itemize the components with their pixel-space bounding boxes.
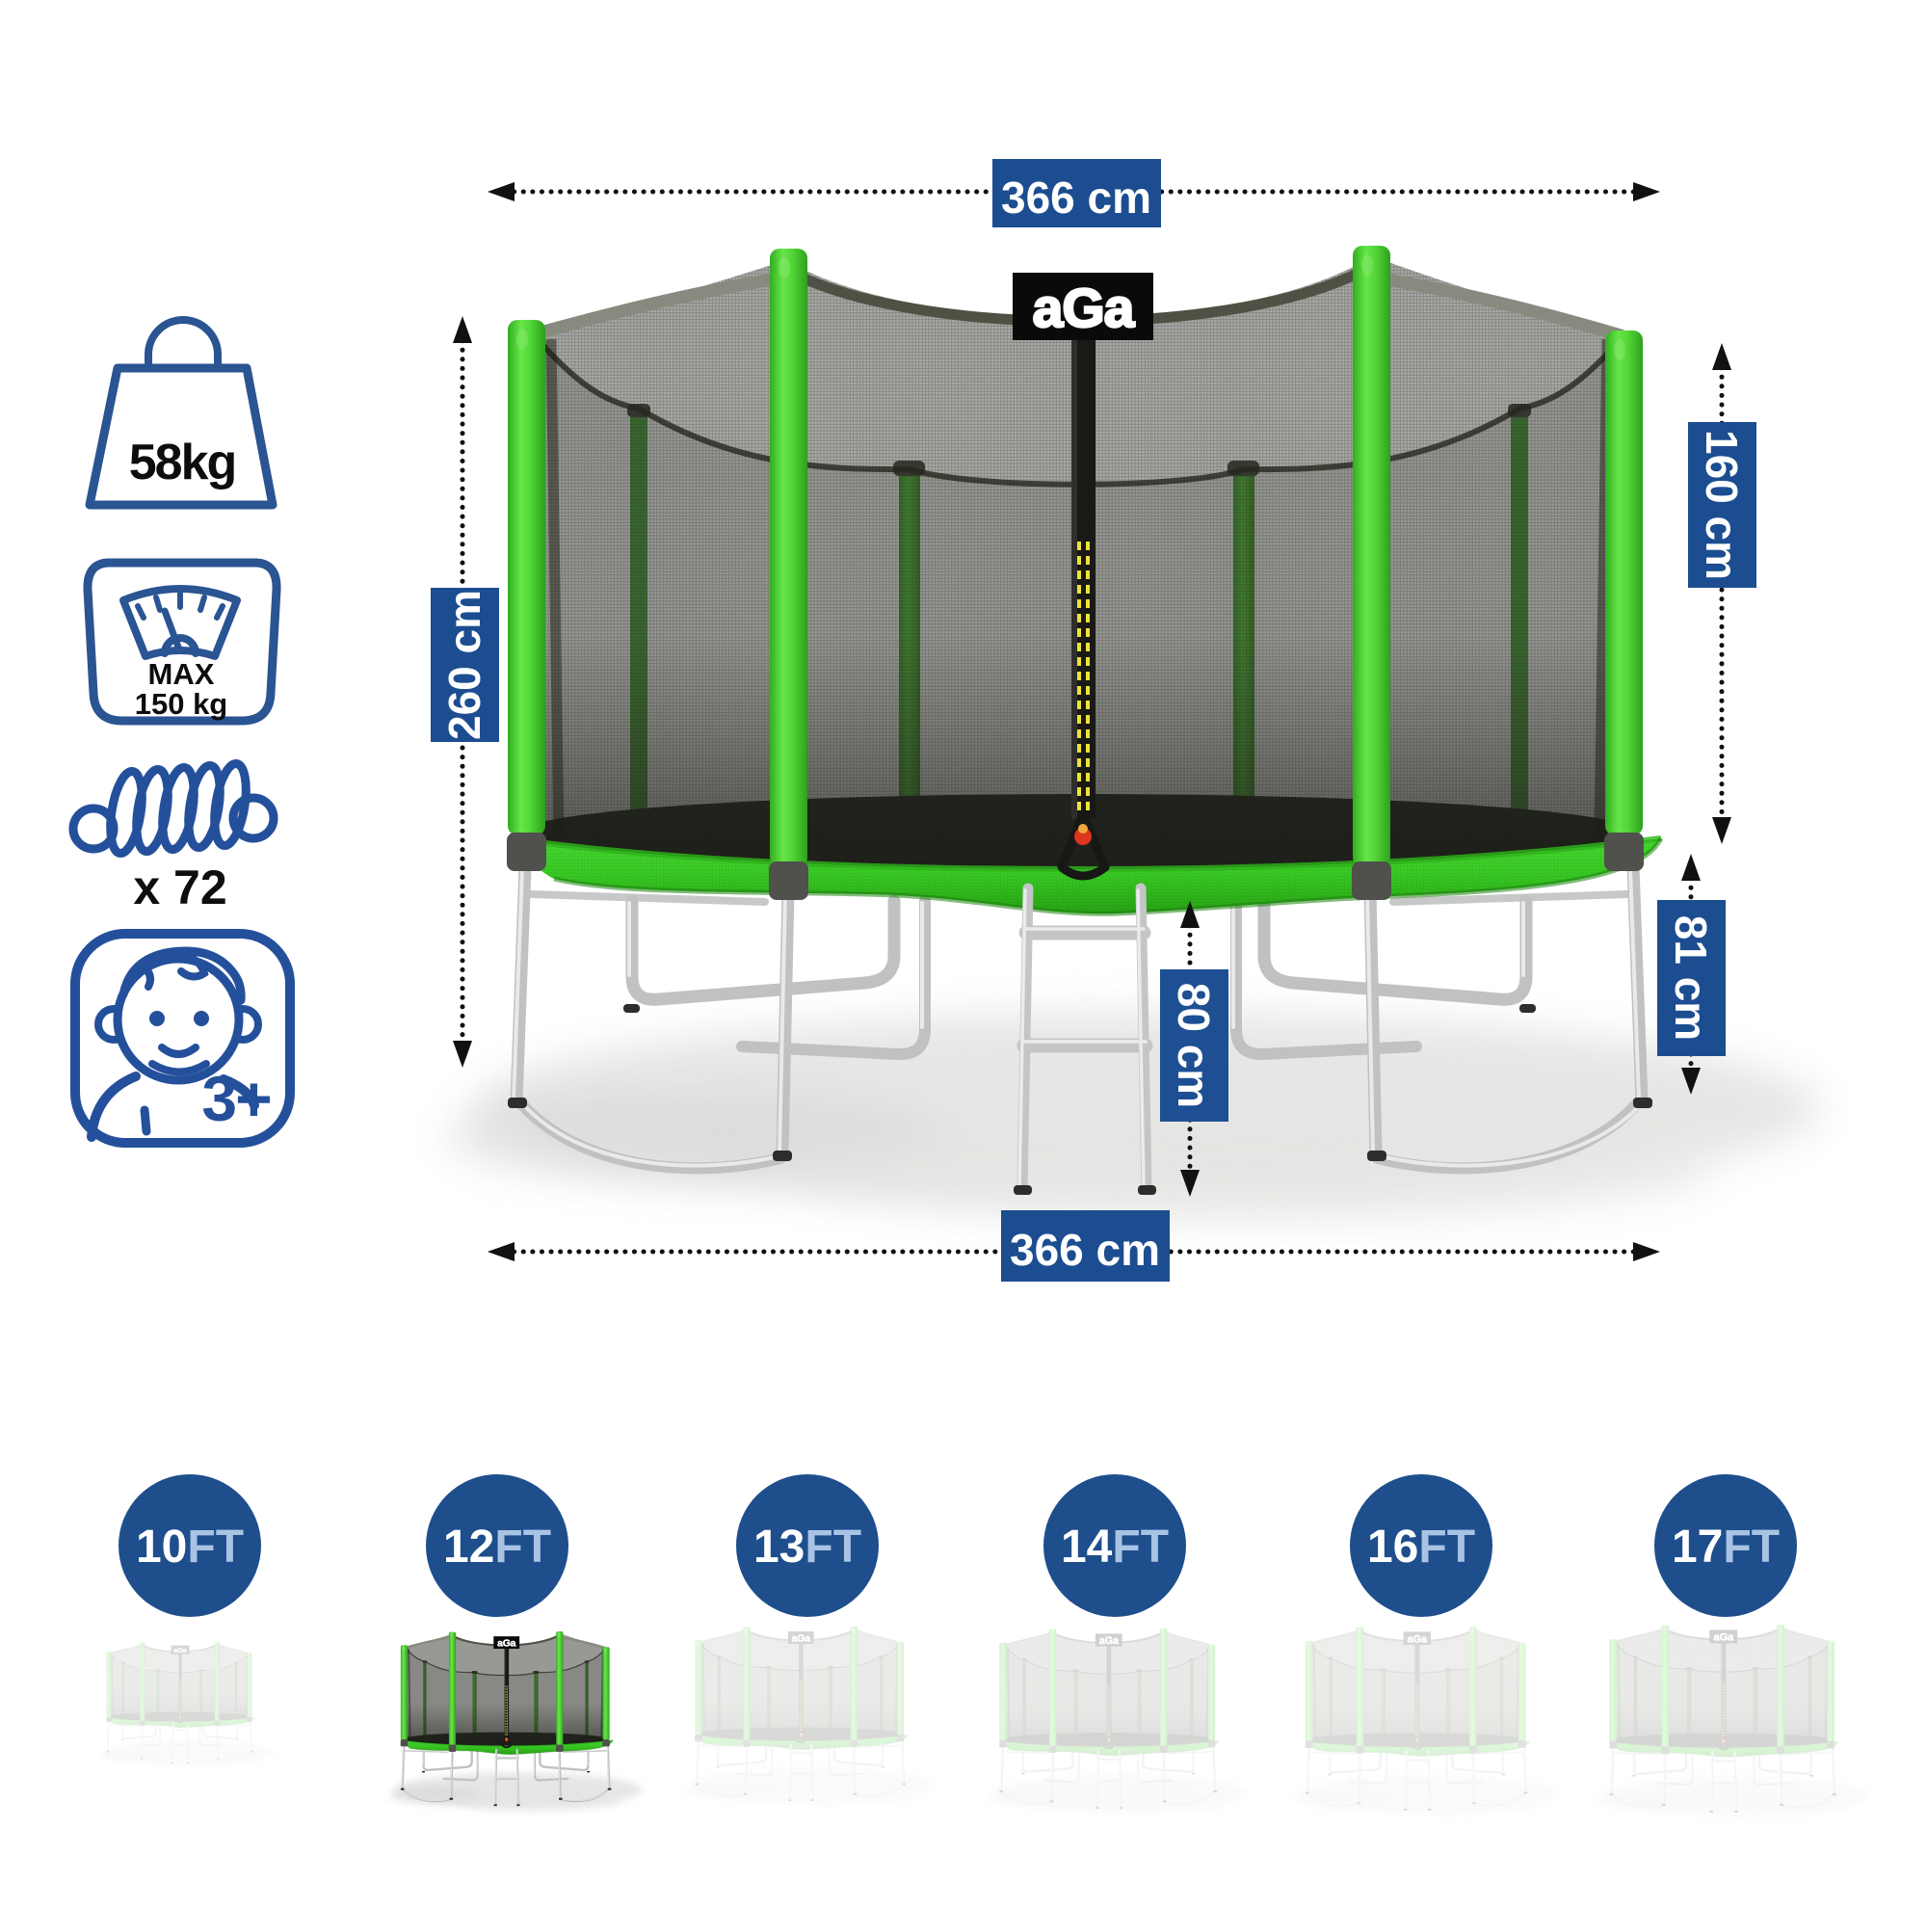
- svg-text:x 72: x 72: [133, 860, 226, 914]
- svg-text:17FT: 17FT: [1672, 1522, 1780, 1573]
- svg-text:13FT: 13FT: [753, 1522, 861, 1573]
- svg-text:58kg: 58kg: [129, 435, 236, 490]
- svg-text:MAX: MAX: [148, 657, 215, 691]
- svg-text:3+: 3+: [201, 1063, 270, 1134]
- svg-text:16FT: 16FT: [1367, 1522, 1475, 1573]
- svg-text:366 cm: 366 cm: [1010, 1225, 1160, 1275]
- svg-text:12FT: 12FT: [443, 1522, 551, 1573]
- svg-text:260 cm: 260 cm: [439, 590, 489, 740]
- svg-text:14FT: 14FT: [1061, 1522, 1169, 1573]
- svg-text:10FT: 10FT: [136, 1522, 244, 1573]
- svg-text:80 cm: 80 cm: [1169, 983, 1219, 1108]
- svg-text:366 cm: 366 cm: [1001, 172, 1151, 223]
- svg-text:160 cm: 160 cm: [1697, 430, 1747, 580]
- svg-text:150 kg: 150 kg: [135, 687, 228, 721]
- svg-text:81 cm: 81 cm: [1666, 915, 1716, 1041]
